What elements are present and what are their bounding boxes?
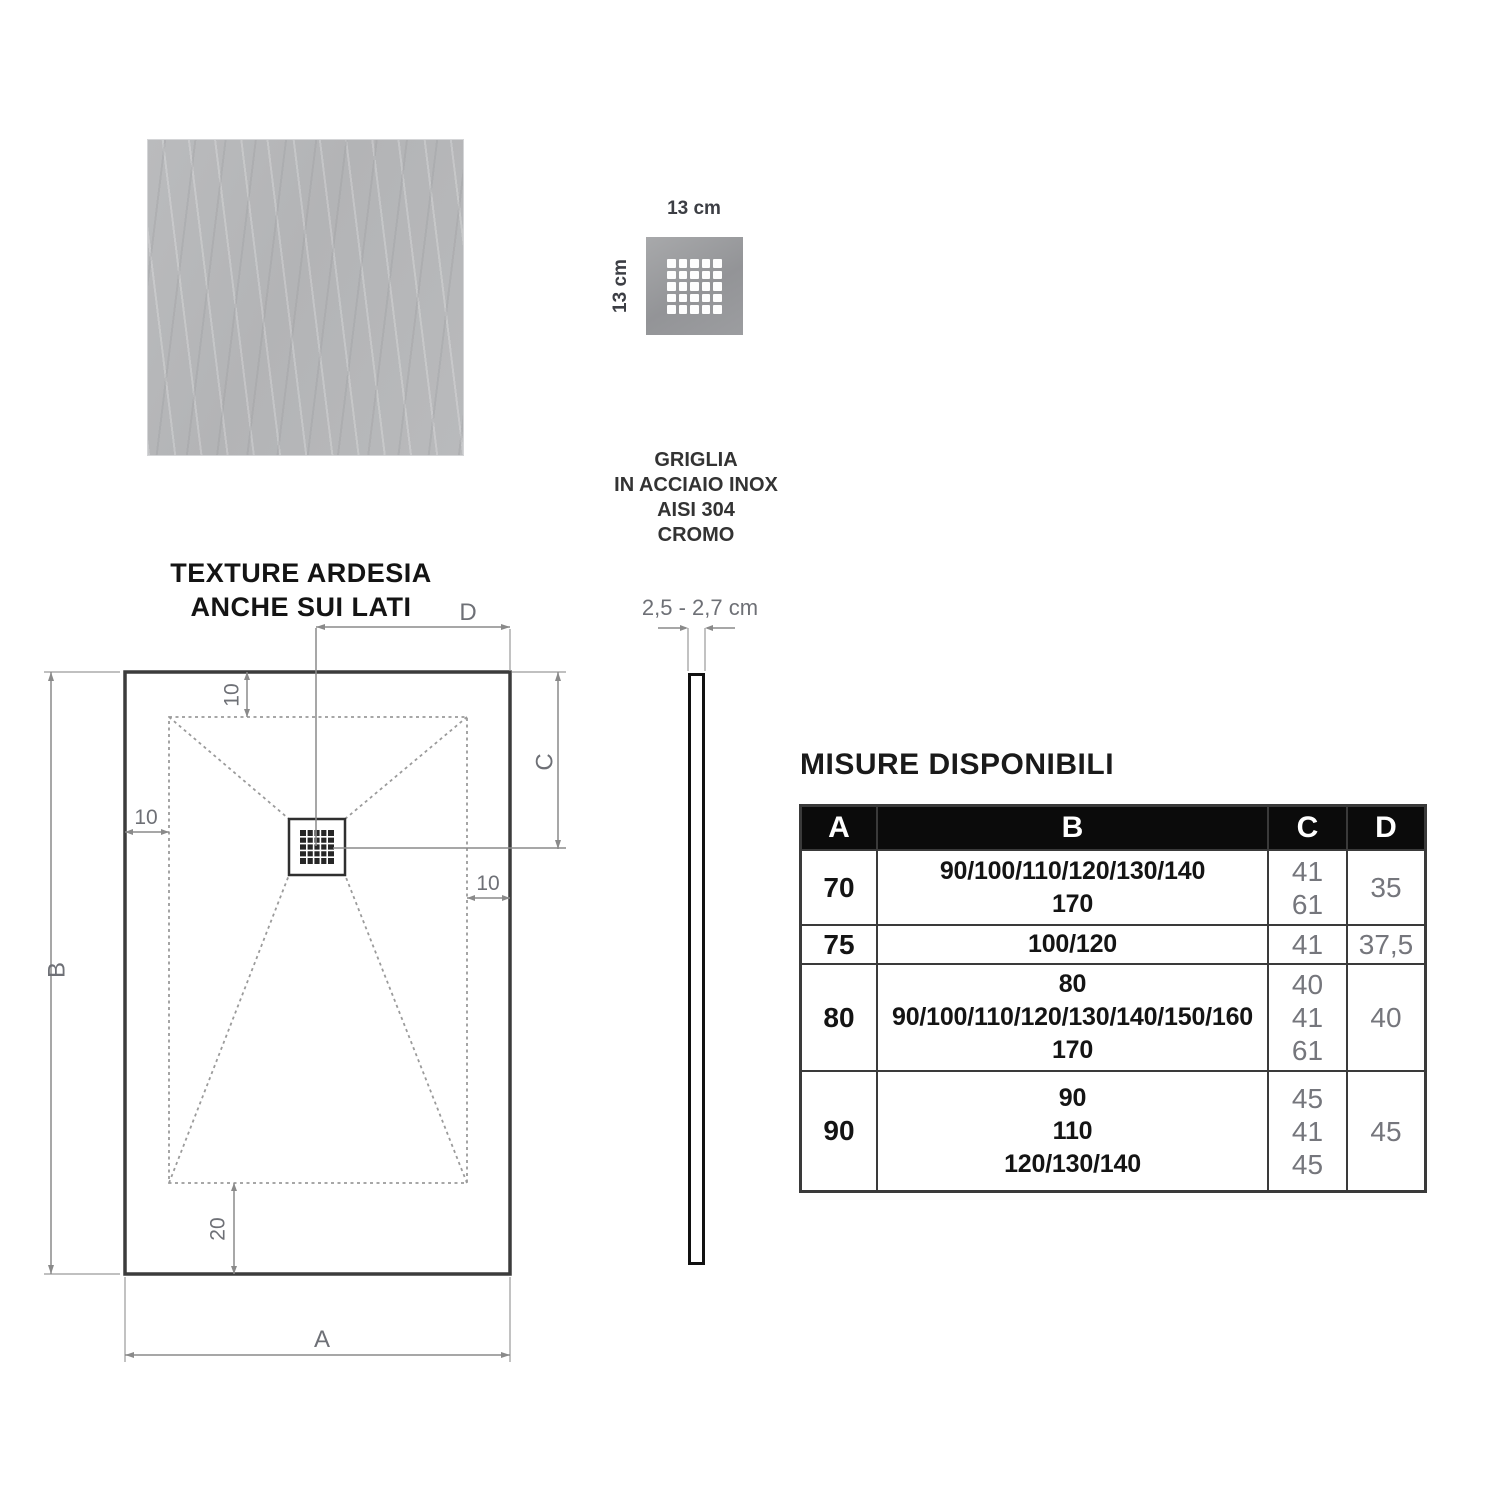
dim-label-inset-bottom: 20 xyxy=(207,1217,230,1240)
slate-texture-sample xyxy=(147,139,464,456)
table-cell-c-line: 61 xyxy=(1292,888,1323,921)
table-cell-d: 37,5 xyxy=(1348,926,1424,965)
dim-label-b: B xyxy=(44,962,71,978)
grille-holes-icon xyxy=(667,259,722,314)
table-cell-d: 35 xyxy=(1348,851,1424,926)
plan-drawing: B A D C 10 10 10 20 xyxy=(30,595,590,1370)
table-cell-c-line: 40 xyxy=(1292,968,1323,1001)
table-cell-c-line: 41 xyxy=(1292,855,1323,888)
table-cell-b-line: 100/120 xyxy=(1028,928,1117,961)
table-cell-b-line: 90 xyxy=(1059,1082,1086,1115)
dim-label-inset-right: 10 xyxy=(476,872,499,895)
drain-grille-icon xyxy=(300,830,334,864)
table-cell-b-line: 170 xyxy=(1052,888,1093,921)
profile-dim-extensions xyxy=(688,628,705,671)
dim-label-a: A xyxy=(314,1326,330,1353)
table-cell-d: 45 xyxy=(1348,1072,1424,1190)
table-cell-c-line: 41 xyxy=(1292,928,1323,961)
table-cell-d: 40 xyxy=(1348,965,1424,1072)
table-cell-c-line: 41 xyxy=(1292,1001,1323,1034)
table-cell-a: 80 xyxy=(802,965,878,1072)
table-cell-c-line: 45 xyxy=(1292,1148,1323,1181)
sizes-table: A B C D 70 90/100/110/120/130/140 170 41… xyxy=(799,804,1427,1193)
grille-caption-line1: GRIGLIA xyxy=(576,448,816,473)
table-header-b: B xyxy=(878,807,1269,851)
table-cell-a: 90 xyxy=(802,1072,878,1190)
grille-height-label: 13 cm xyxy=(610,236,634,336)
table-cell-c: 41 xyxy=(1269,926,1348,965)
profile-thickness-label: 2,5 - 2,7 cm xyxy=(642,595,758,620)
table-cell-b: 100/120 xyxy=(878,926,1269,965)
table-cell-b-line: 120/130/140 xyxy=(1004,1148,1141,1181)
table-cell-b-line: 170 xyxy=(1052,1034,1093,1067)
dim-label-c: C xyxy=(532,753,559,770)
dim-label-inset-left: 10 xyxy=(134,806,157,829)
table-cell-b-line: 90/100/110/120/130/140/150/160 xyxy=(892,1001,1253,1034)
table-cell-c-line: 45 xyxy=(1292,1082,1323,1115)
grille-caption: GRIGLIA IN ACCIAIO INOX AISI 304 CROMO xyxy=(576,448,816,548)
product-spec-sheet: TEXTURE ARDESIA ANCHE SUI LATI 13 cm 13 … xyxy=(0,0,1500,1500)
dim-label-inset-top: 10 xyxy=(221,683,244,706)
texture-caption-line1: TEXTURE ARDESIA xyxy=(151,556,451,590)
dim-label-d: D xyxy=(459,599,476,626)
profile-bar xyxy=(690,675,704,1264)
table-cell-c: 41 61 xyxy=(1269,851,1348,926)
table-header-c: C xyxy=(1269,807,1348,851)
grille-width-label: 13 cm xyxy=(634,198,754,220)
table-cell-b: 90/100/110/120/130/140 170 xyxy=(878,851,1269,926)
drain-grille-image xyxy=(646,237,743,335)
table-cell-b-line: 90/100/110/120/130/140 xyxy=(940,855,1205,888)
table-cell-b: 90 110 120/130/140 xyxy=(878,1072,1269,1190)
table-header-a: A xyxy=(802,807,878,851)
grille-caption-line2: IN ACCIAIO INOX xyxy=(576,473,816,498)
table-cell-c-line: 41 xyxy=(1292,1115,1323,1148)
table-cell-a: 70 xyxy=(802,851,878,926)
table-header-d: D xyxy=(1348,807,1424,851)
table-cell-b: 80 90/100/110/120/130/140/150/160 170 xyxy=(878,965,1269,1072)
grille-caption-line4: CROMO xyxy=(576,523,816,548)
table-cell-c: 40 41 61 xyxy=(1269,965,1348,1072)
table-cell-b-line: 80 xyxy=(1059,968,1086,1001)
table-cell-a: 75 xyxy=(802,926,878,965)
profile-drawing: 2,5 - 2,7 cm xyxy=(590,595,790,1275)
table-cell-c-line: 61 xyxy=(1292,1034,1323,1067)
grille-caption-line3: AISI 304 xyxy=(576,498,816,523)
table-cell-c: 45 41 45 xyxy=(1269,1072,1348,1190)
sizes-table-title: MISURE DISPONIBILI xyxy=(800,748,1114,782)
table-cell-b-line: 110 xyxy=(1053,1115,1093,1148)
